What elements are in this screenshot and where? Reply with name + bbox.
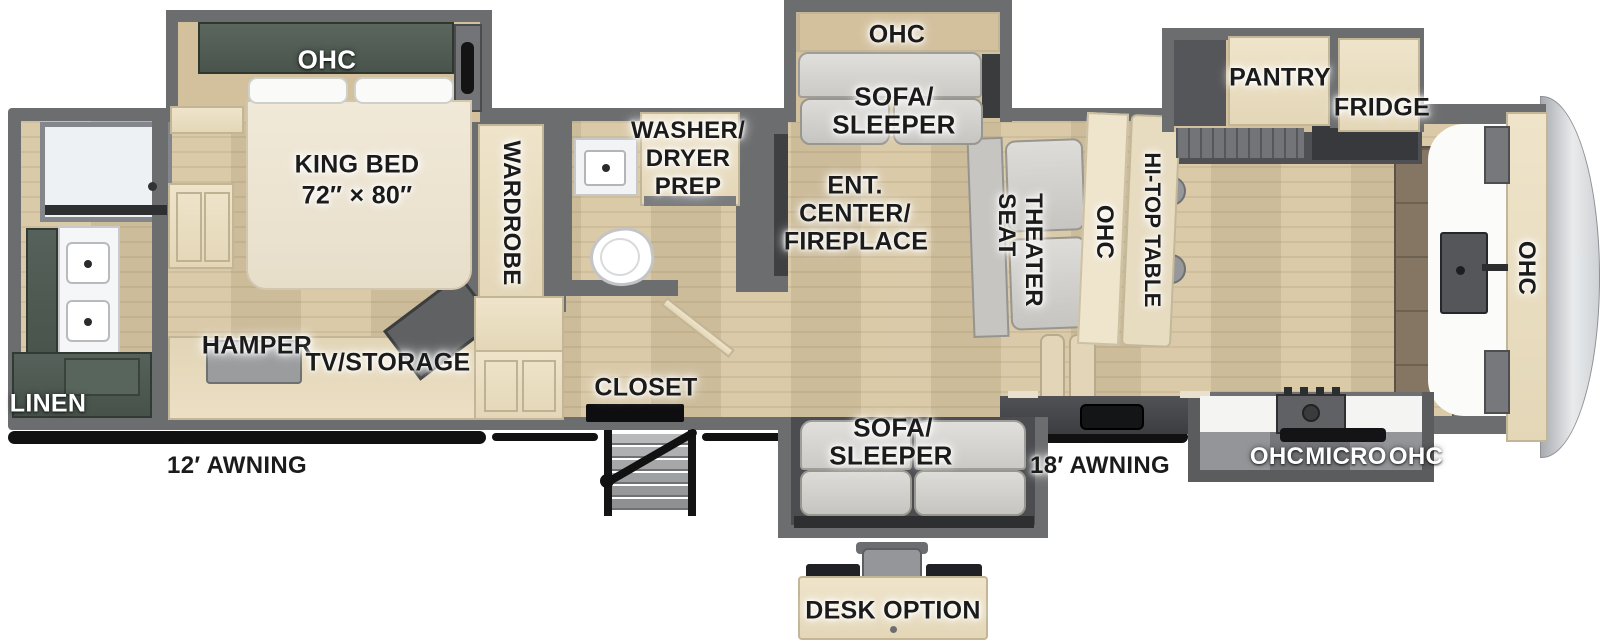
stove-burner [1302, 404, 1320, 422]
label-kitchen-micro: MICRO [1305, 443, 1387, 471]
sofa-bottom-floor-strip [794, 516, 1034, 528]
label-pantry: PANTRY [1229, 64, 1331, 93]
label-linen: LINEN [10, 390, 87, 419]
kitchen-rear-counter-grate [1176, 128, 1304, 158]
vanity-sink-2-drain [84, 318, 92, 326]
closet-bench-panel-1 [484, 360, 518, 412]
label-sofa-bottom-1: SOFA/ [853, 413, 933, 444]
oven-bar [1280, 428, 1386, 442]
island-tab-left [1008, 391, 1038, 398]
island-sink [1080, 404, 1144, 430]
bed-slide-end-window [461, 42, 474, 94]
midbath-sink-drain [602, 164, 610, 172]
label-tv-storage: TV/STORAGE [305, 349, 470, 378]
label-sofa-top-2: SLEEPER [832, 110, 955, 141]
label-awning-12: 12′ AWNING [167, 452, 307, 480]
sofa-top-side-box [982, 54, 1000, 118]
label-closet: CLOSET [594, 374, 697, 403]
bedroom-door-panel [176, 192, 202, 262]
vanity-sink-1-drain [84, 260, 92, 268]
label-kitchen-ohc-right: OHC [1389, 443, 1443, 471]
sofa-bottom-seat-right [914, 470, 1026, 516]
pantry-slide-dark-band [1174, 40, 1226, 126]
label-ohc-front: OHC [1512, 241, 1540, 295]
pillow-right [354, 77, 454, 104]
front-cabinet-box-bottom [1484, 350, 1510, 414]
awning-bar-segment-left-of-door [492, 433, 598, 441]
label-ohc-island: OHC [1090, 205, 1118, 259]
label-washer-1: WASHER/ [631, 117, 745, 145]
closet-cabinet [474, 296, 564, 352]
front-tv-dot [1456, 266, 1465, 275]
rv-floorplan: OHC KING BED 72″ × 80″ WARDROBE WASHER/ … [0, 0, 1600, 641]
midbath-wall-left [556, 118, 572, 296]
label-hitop-table: HI-TOP TABLE [1139, 152, 1165, 307]
stair-tread [612, 486, 688, 497]
label-king-bed-1: KING BED [295, 151, 420, 180]
label-washer-3: PREP [655, 173, 722, 201]
label-hamper: HAMPER [202, 332, 312, 361]
front-cap-shell [1540, 96, 1600, 458]
label-ohc-bed: OHC [298, 45, 357, 76]
desk-knob [890, 626, 897, 633]
entry-threshold [586, 404, 684, 422]
awning-bar-segment-right-of-door [702, 433, 790, 441]
label-sofa-bottom-2: SLEEPER [829, 441, 952, 472]
stair-handrail-cap [600, 474, 614, 488]
label-ent-3: FIREPLACE [784, 228, 928, 257]
pillow-left [248, 77, 348, 104]
sofa-bottom-seat-left [800, 470, 912, 516]
label-awning-18: 18′ AWNING [1030, 452, 1170, 480]
label-fridge: FRIDGE [1334, 94, 1430, 123]
awning-bar-12ft [8, 431, 486, 444]
label-ent-2: CENTER/ [799, 200, 911, 229]
front-cabinet-box-top [1484, 126, 1510, 184]
wall-bed-bath [152, 118, 168, 418]
label-desk-option: DESK OPTION [805, 597, 981, 626]
label-ent-1: ENT. [827, 172, 882, 201]
stove-knobs [1284, 387, 1340, 395]
label-sofa-top-1: SOFA/ [854, 82, 934, 113]
label-washer-2: DRYER [646, 145, 731, 173]
shower-wall-strip [45, 205, 167, 215]
label-ohc-sofa-top: OHC [869, 21, 925, 50]
bedroom-door-panel-2 [204, 192, 230, 262]
nightstand-left [170, 106, 244, 134]
stair-rail-right [688, 430, 696, 516]
closet-bench-panel-2 [522, 360, 556, 412]
label-king-bed-2: 72″ × 80″ [302, 182, 413, 211]
shower-drain [148, 182, 157, 191]
label-kitchen-ohc-left: OHC [1250, 443, 1304, 471]
label-theater-seat: THEATERSEAT [993, 193, 1047, 307]
label-wardrobe: WARDROBE [497, 140, 525, 285]
front-tv-mount [1482, 264, 1508, 271]
stair-tread [612, 499, 688, 510]
stair-rail-left [604, 430, 612, 516]
